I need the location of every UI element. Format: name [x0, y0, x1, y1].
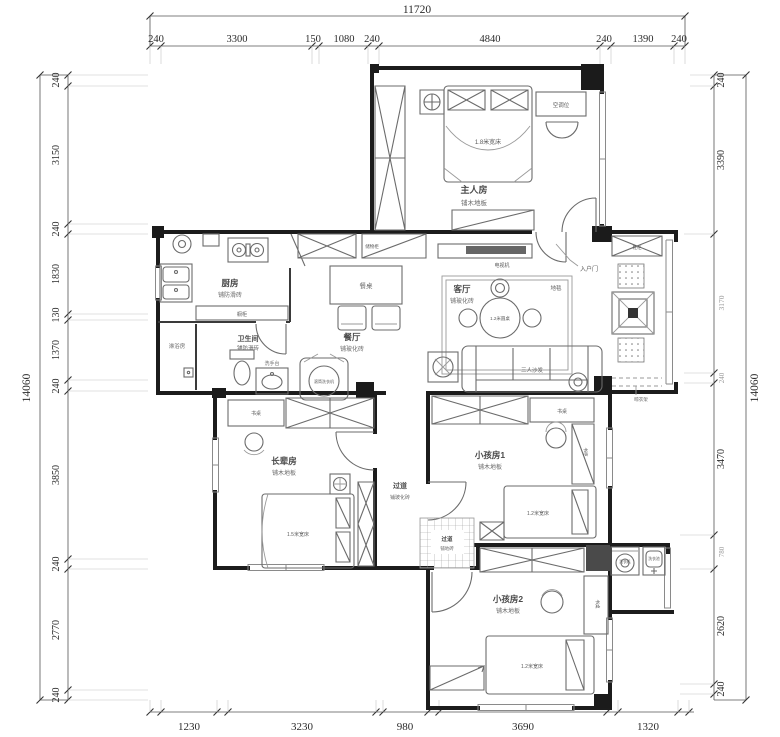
round-chair-icon [523, 309, 541, 327]
dim-bottom-seg-0: 1230 [178, 721, 201, 733]
dim-top-seg-1: 3300 [227, 34, 248, 45]
column [152, 226, 164, 238]
window-elder-west [212, 438, 219, 492]
master-tv-cabinet [452, 210, 534, 230]
dim-right-seg-2: 3170 [717, 295, 726, 310]
master-ac-label: 空调位 [553, 101, 570, 109]
kid2-wardrobe [480, 548, 584, 572]
room-label-master: 主人房 [460, 184, 487, 195]
room-label-kid1: 小孩房1 [474, 450, 506, 460]
floor-label-elder: 铺木地板 [272, 469, 296, 477]
decor-mat [618, 338, 644, 362]
kid1-bed [504, 486, 596, 538]
floor-label-living: 铺玻化砖 [450, 297, 474, 305]
master-wardrobe [375, 86, 405, 230]
drum-washer-label: 滚筒洗衣机 [314, 378, 334, 384]
dining-storage-cabinet [298, 234, 426, 258]
elder-bed-label: 1.5米宽床 [287, 531, 309, 538]
bathroom-door [256, 324, 286, 354]
basin-label: 洗手台 [264, 360, 279, 367]
dim-right-seg-5: 780 [718, 546, 726, 557]
master-bed [444, 86, 532, 182]
dimension-chain-right: 14060 240 3390 3170 240 3470 780 2620 24… [680, 72, 761, 704]
floor-label-hall: 铺玻化砖 [390, 494, 410, 501]
elder-desk-label: 书桌 [251, 410, 261, 417]
dim-right-seg-7: 240 [716, 682, 727, 697]
floor-medallion [612, 292, 654, 334]
floor-label-kid2: 铺木地板 [496, 607, 520, 615]
column [212, 388, 226, 398]
window-kid1-east [606, 428, 613, 488]
entry-door-leader [556, 244, 578, 266]
dim-left-seg-6: 240 [51, 379, 62, 394]
kid2-chair [541, 590, 563, 613]
column [592, 226, 612, 242]
kid1-chair [546, 422, 566, 448]
room-label-hall2: 过道 [441, 535, 453, 543]
dim-bottom-seg-2: 980 [397, 721, 414, 733]
sofa-label: 三人沙发 [521, 366, 544, 374]
dim-left-total: 14060 [21, 373, 33, 402]
kid1-bookcase [572, 424, 594, 484]
floor-label-kitchen: 铺防滑砖 [218, 291, 242, 299]
dim-right-total: 14060 [749, 373, 761, 402]
dimension-chain-left: 14060 240 3150 240 1830 130 1370 240 385… [21, 72, 148, 704]
floor-label-kid1: 铺木地板 [478, 463, 502, 471]
shower-label: 淋浴房 [169, 342, 186, 350]
hall-tile-hatch [420, 518, 474, 568]
decor-mat [618, 264, 644, 288]
floor-label-hall2: 铺地砖 [440, 545, 454, 552]
side-table-icon [569, 373, 587, 391]
kid1-door [428, 482, 466, 520]
master-bed-label: 1.8米宽床 [475, 138, 501, 146]
room-label-bathroom: 卫生间 [238, 334, 259, 343]
elder-chair [244, 433, 264, 455]
dim-top-total: 11720 [403, 4, 432, 16]
floor-label-dining: 铺玻化砖 [340, 345, 364, 353]
nightstand-lamp-icon [330, 474, 350, 494]
dining-table-label: 餐桌 [360, 281, 374, 290]
room-label-kitchen: 厨房 [221, 278, 238, 288]
kid2-corner-cabinet [430, 666, 484, 690]
dim-left-seg-0: 240 [51, 73, 62, 88]
round-chair-icon [491, 279, 509, 297]
kitchen-counter-label: 橱柜 [237, 311, 247, 318]
master-door [562, 198, 596, 232]
range-hood-icon [203, 234, 219, 246]
column [356, 382, 374, 398]
kid1-bed-label: 1.2米宽床 [527, 510, 549, 517]
dim-right-seg-0: 240 [716, 73, 727, 88]
shower-drain-icon [184, 368, 193, 377]
room-labels: 主人房 铺木地板 厨房 铺防滑砖 卫生间 铺防滑砖 淋浴房 洗手台 餐厅 铺玻化… [169, 184, 660, 670]
floor-label-master: 铺木地板 [461, 198, 488, 207]
washer-label: 洗衣机 [619, 559, 631, 564]
dim-left-seg-3: 1830 [51, 264, 62, 284]
stove-icon [228, 238, 268, 262]
rug-label: 地毯 [550, 284, 562, 292]
kid2-door [432, 572, 472, 612]
window-kid2-east [606, 618, 613, 682]
toilet-icon [230, 350, 254, 385]
floor-lamp-icon [428, 352, 458, 382]
dim-left-seg-1: 3150 [51, 145, 62, 165]
elder-wardrobe [286, 398, 374, 428]
dim-right-seg-3: 240 [718, 372, 726, 383]
washbasin-icon [256, 368, 288, 394]
kitchen-sink-icon [160, 264, 192, 302]
dining-chair [338, 306, 366, 330]
drying-rack-label: 晾衣架 [634, 396, 648, 403]
ceiling-lamp-icon [420, 90, 444, 114]
kid1-nightstand [480, 522, 504, 540]
window-master-east [599, 92, 606, 226]
room-label-hall: 过道 [393, 481, 407, 490]
dim-top-seg-5: 4840 [480, 34, 501, 45]
laundry-sink-label: 洗衣池 [648, 556, 660, 561]
room-label-kid2: 小孩房2 [492, 594, 524, 604]
dim-left-seg-8: 240 [51, 557, 62, 572]
dim-right-seg-1: 3390 [716, 150, 727, 170]
dim-top-seg-0: 240 [148, 34, 164, 45]
tv-icon [466, 246, 526, 254]
floor-label-bathroom: 铺防滑砖 [237, 344, 260, 352]
dim-bottom-seg-4: 1320 [637, 721, 660, 733]
dim-right-seg-6: 2620 [716, 616, 727, 636]
dim-left-seg-10: 240 [51, 688, 62, 703]
dim-left-seg-5: 1370 [51, 340, 62, 360]
elder-door [336, 432, 374, 470]
dim-left-seg-2: 240 [51, 222, 62, 237]
dim-right-seg-4: 3470 [716, 449, 727, 469]
column [581, 64, 604, 90]
room-label-living: 客厅 [452, 284, 471, 294]
kid1-desk-label: 书桌 [557, 408, 567, 415]
entry-door-label: 入户门 [580, 265, 598, 273]
structural-columns [152, 64, 612, 708]
column [594, 694, 610, 708]
window-kitchen-west [155, 266, 162, 300]
shoe-cabinet-label: 鞋柜 [633, 244, 642, 251]
kid2-desk-label: 书桌 [594, 600, 601, 609]
dim-left-seg-7: 3850 [51, 465, 62, 485]
window-kid2-south [478, 704, 574, 711]
dim-bottom-seg-1: 3230 [291, 721, 314, 733]
column [594, 376, 612, 394]
dim-top-seg-3: 1080 [334, 34, 355, 45]
dimension-chain-top: 11720 240 3300 150 1080 240 4840 240 139… [147, 4, 689, 64]
window-foyer-east [666, 240, 673, 384]
flue-icon [173, 235, 191, 253]
room-label-elder: 长辈房 [271, 456, 297, 466]
room-label-dining: 餐厅 [342, 332, 361, 342]
dim-top-seg-8: 240 [671, 34, 687, 45]
furniture: 1.8米宽床 空调位 橱柜 [160, 86, 665, 694]
dim-left-seg-4: 130 [51, 308, 62, 323]
column [370, 64, 379, 73]
column [586, 545, 610, 571]
laundry-sink-icon [643, 547, 665, 575]
dim-top-seg-6: 240 [596, 34, 612, 45]
elder-bed [262, 494, 354, 568]
round-chair-icon [459, 309, 477, 327]
dim-bottom-seg-3: 3690 [512, 721, 535, 733]
walls [152, 64, 676, 708]
master-chair [546, 122, 578, 138]
dim-top-seg-4: 240 [364, 34, 380, 45]
kid1-wardrobe [432, 396, 528, 424]
entry-door [536, 232, 566, 262]
dining-chair [372, 306, 400, 330]
dim-left-seg-9: 2770 [51, 620, 62, 640]
kid2-bed-label: 1.2米宽床 [521, 663, 543, 670]
elder-side-wardrobe [358, 482, 374, 566]
floor-plan-canvas: 11720 240 3300 150 1080 240 4840 240 139… [0, 0, 780, 737]
dining-cabinet-label: 储物柜 [365, 243, 379, 250]
drying-rack-icon [612, 378, 662, 386]
windows [155, 92, 673, 711]
tv-label: 电视机 [494, 262, 509, 269]
kid1-bookcase-label: 书柜 [582, 448, 589, 457]
dim-top-seg-2: 150 [305, 34, 321, 45]
round-table-label: 1.2米圆桌 [490, 315, 510, 322]
dim-top-seg-7: 1390 [633, 34, 654, 45]
